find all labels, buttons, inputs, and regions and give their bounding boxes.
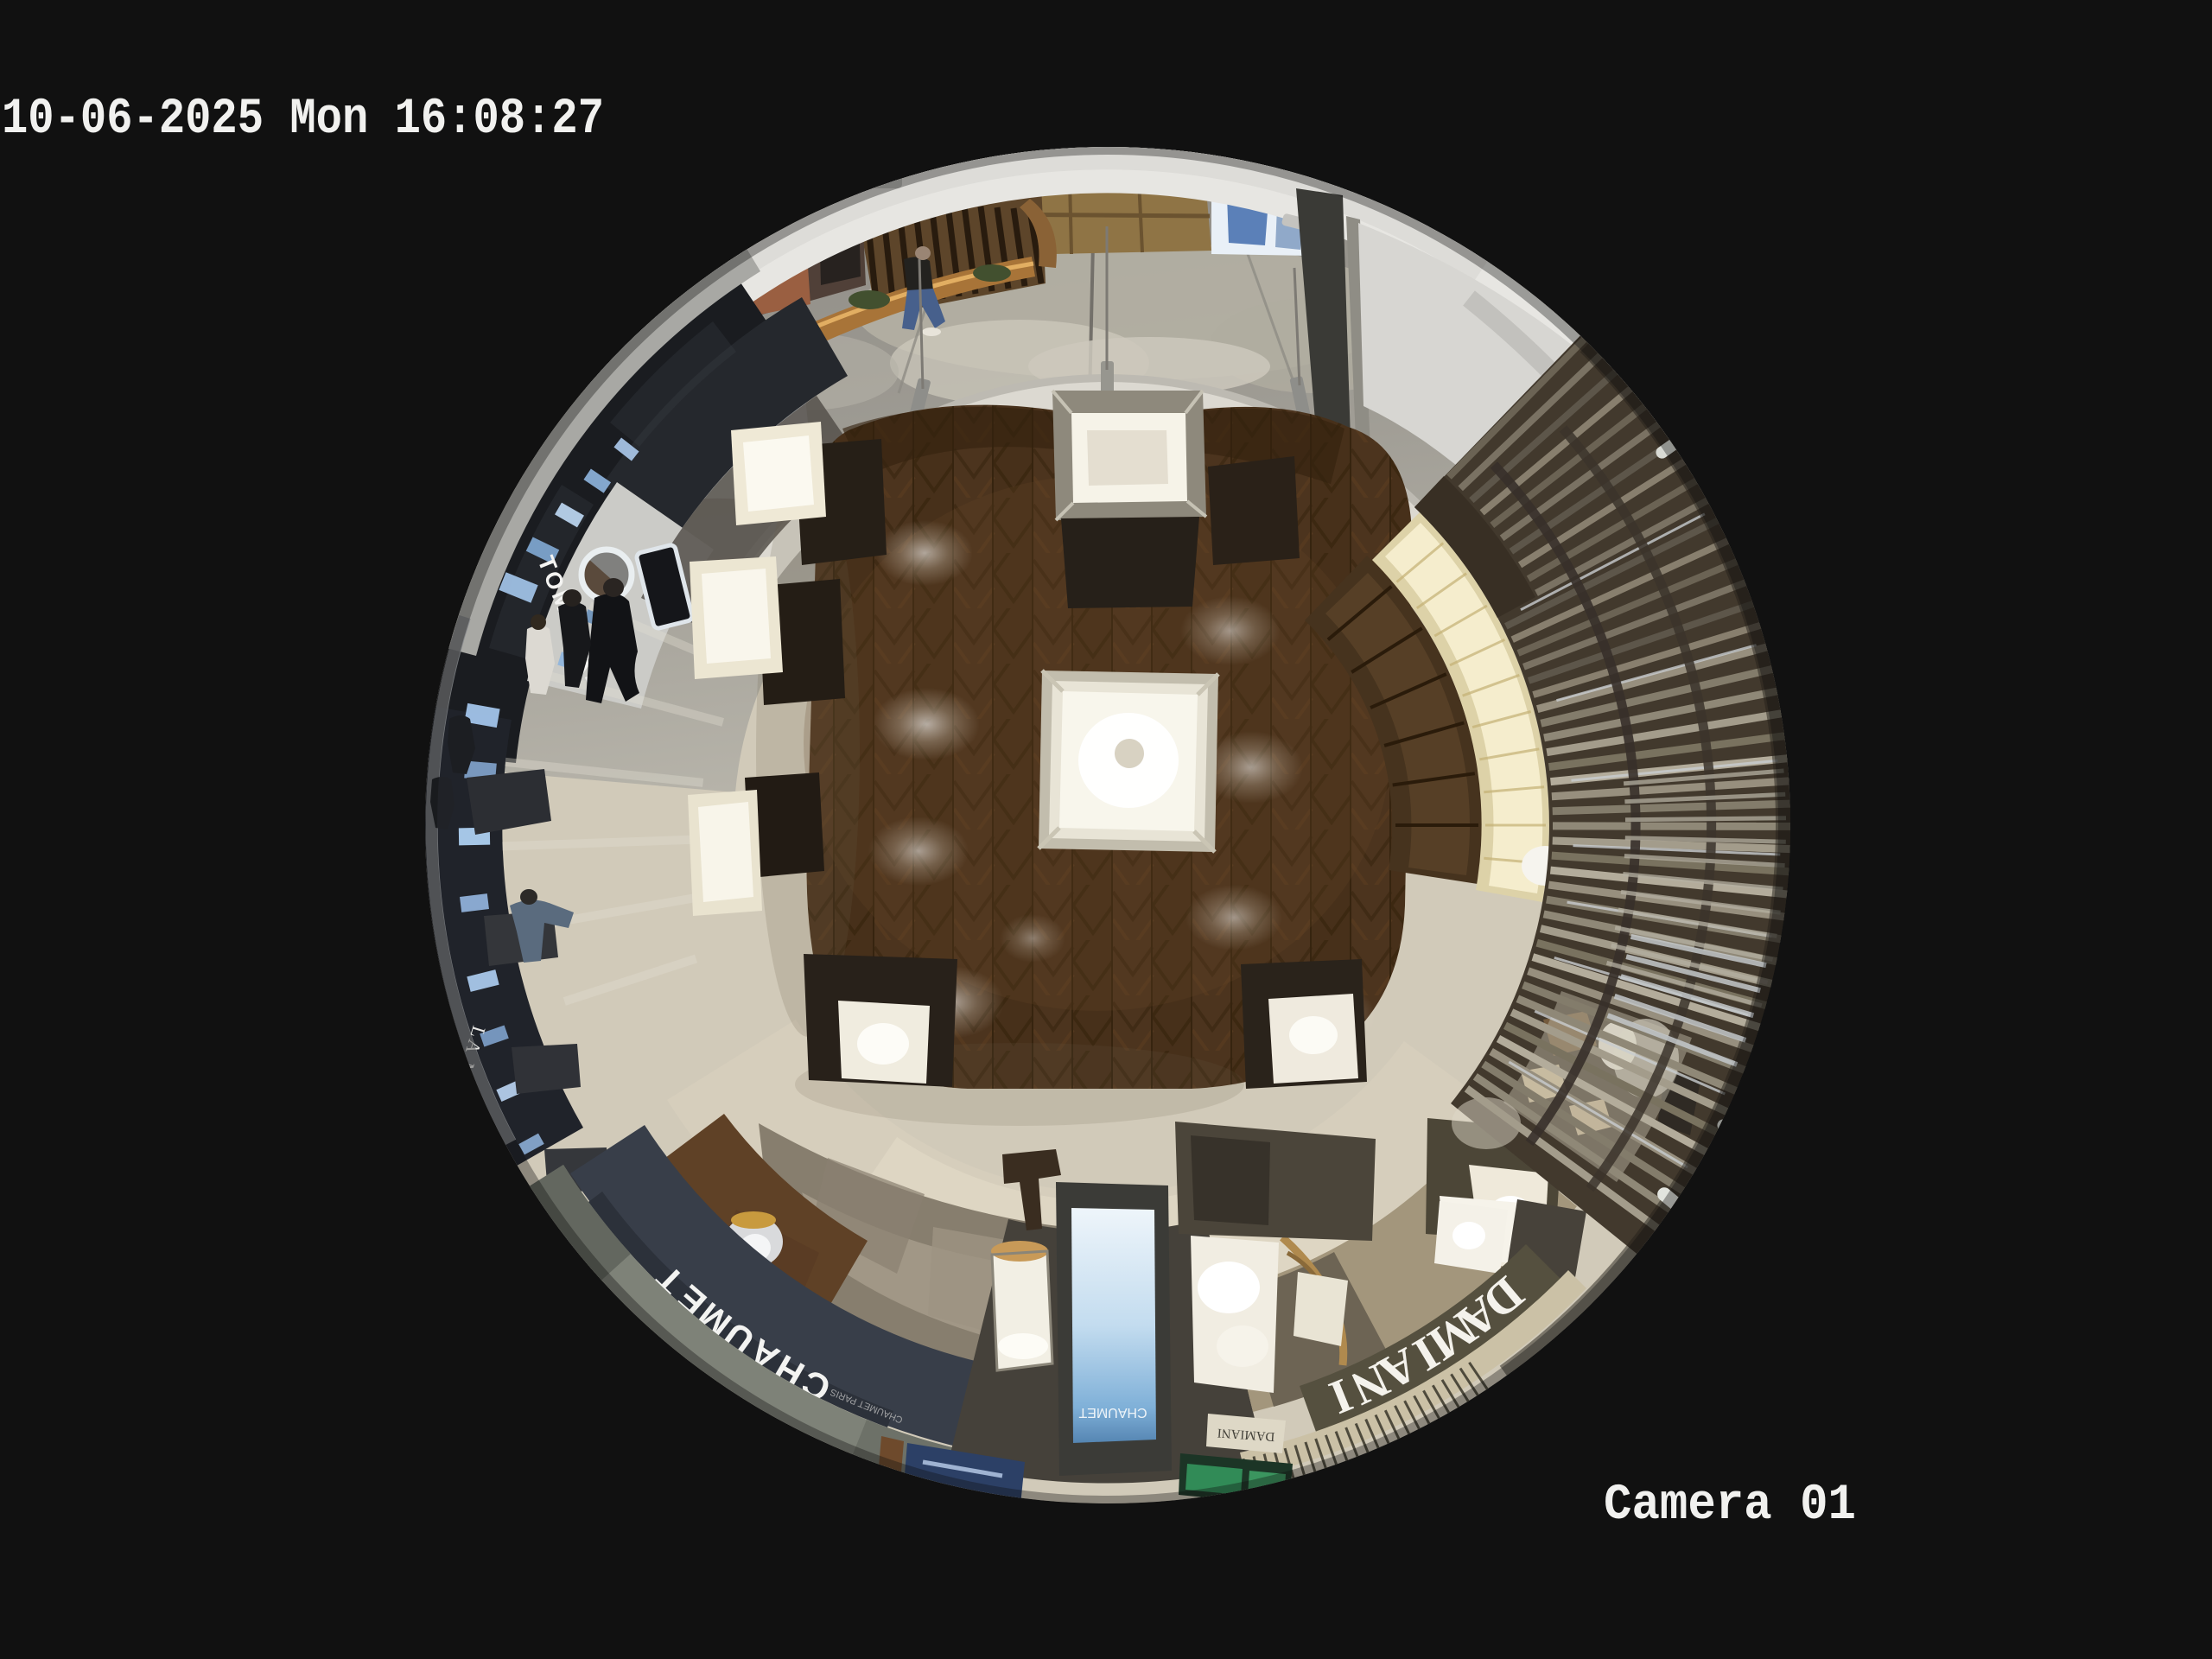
svg-text:CHAUMET: CHAUMET <box>1078 1405 1147 1420</box>
svg-text:Camera 01: Camera 01 <box>1604 1478 1856 1534</box>
svg-text:10-06-2025 Mon 16:08:27: 10-06-2025 Mon 16:08:27 <box>2 92 604 148</box>
